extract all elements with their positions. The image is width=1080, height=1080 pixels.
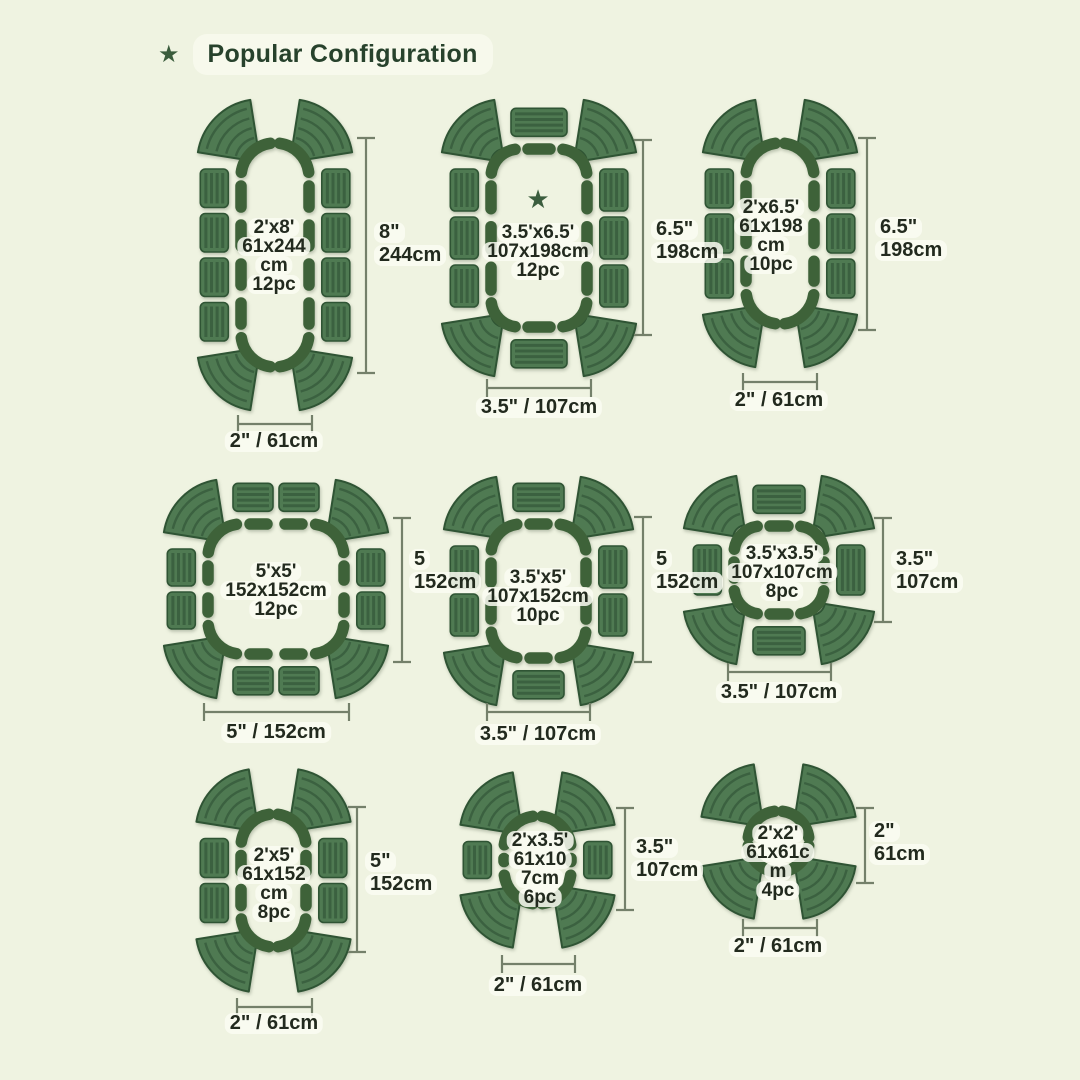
label-line: 152x152cm [220, 581, 331, 600]
label-line: 152cm [409, 572, 481, 593]
label-line: 61x61c [741, 843, 814, 862]
label-line: 7cm [516, 869, 564, 888]
label-line: 8" [374, 222, 405, 243]
label-line: 4pc [757, 881, 800, 900]
label-line: 3.5" / 107cm [475, 724, 601, 745]
width-dimension-label: 2" / 61cm [730, 390, 828, 411]
label-line: 3.5" / 107cm [716, 682, 842, 703]
bed-size-label: 3.5'x5' 107x152cm 10pc [482, 568, 593, 625]
label-line: 198cm [875, 240, 947, 261]
label-line: 2'x5' [249, 846, 300, 865]
label-line: 107x198cm [482, 242, 593, 261]
label-line: 198cm [651, 242, 723, 263]
garden-bed-diagram-svg [0, 0, 1080, 1080]
height-dimension-label: 6.5" 198cm [875, 217, 947, 263]
label-line: 10pc [511, 606, 564, 625]
label-line: 5'x5' [251, 562, 302, 581]
label-line: cm [255, 256, 292, 275]
height-dimension-label: 2" 61cm [869, 821, 930, 867]
label-line: 107x107cm [726, 563, 837, 582]
bed-size-label: 2'x3.5' 61x10 7cm 6pc [507, 831, 574, 907]
label-line: 61cm [869, 844, 930, 865]
bed-size-label: 2'x2' 61x61c m 4pc [741, 824, 814, 900]
width-dimension-label: 2" / 61cm [489, 975, 587, 996]
label-line: 3.5" [891, 549, 938, 570]
label-line: m [765, 862, 792, 881]
label-line: 2" / 61cm [489, 975, 587, 996]
height-dimension-label: 5 152cm [651, 549, 723, 595]
label-line: 8pc [761, 582, 804, 601]
height-dimension-label: 3.5" 107cm [891, 549, 963, 595]
label-line: 8pc [253, 903, 296, 922]
height-dimension-label: 5" 152cm [365, 851, 437, 897]
height-dimension-label: 8" 244cm [374, 222, 446, 268]
label-line: 61x198 [734, 217, 807, 236]
label-line: 12pc [511, 261, 564, 280]
label-line: 10pc [744, 255, 797, 274]
height-dimension-label: 6.5" 198cm [651, 219, 723, 265]
label-line: 3.5" [631, 837, 678, 858]
label-line: 3.5'x6.5' [497, 223, 579, 242]
label-line: 6pc [519, 888, 562, 907]
label-line: 2'x8' [249, 218, 300, 237]
label-line: 6.5" [875, 217, 922, 238]
label-line: 107cm [891, 572, 963, 593]
label-line: 61x244 [237, 237, 310, 256]
bed-size-label: 2'x5' 61x152 cm 8pc [237, 846, 310, 922]
bed-size-label: 3.5'x6.5' 107x198cm 12pc [482, 223, 593, 280]
label-line: 152cm [651, 572, 723, 593]
width-dimension-label: 2" / 61cm [225, 1013, 323, 1034]
popular-configuration-infographic: ★ Popular Configuration 2'x8' 61x244 cm … [0, 0, 1080, 1080]
width-dimension-label: 3.5" / 107cm [475, 724, 601, 745]
width-dimension-label: 5" / 152cm [221, 722, 331, 743]
label-line: 2" / 61cm [729, 936, 827, 957]
label-line: 5 [409, 549, 430, 570]
width-dimension-label: 2" / 61cm [225, 431, 323, 452]
bed-size-label: 5'x5' 152x152cm 12pc [220, 562, 331, 619]
label-line: cm [255, 884, 292, 903]
label-line: 2'x3.5' [507, 831, 574, 850]
label-line: 3.5'x3.5' [741, 544, 823, 563]
label-line: 2'x2' [753, 824, 804, 843]
bed-size-label: 2'x6.5' 61x198 cm 10pc [734, 198, 807, 274]
label-line: 2" / 61cm [730, 390, 828, 411]
featured-star-icon: ★ [526, 186, 549, 212]
label-line: 6.5" [651, 219, 698, 240]
label-line: 3.5" / 107cm [476, 397, 602, 418]
label-line: 3.5'x5' [505, 568, 572, 587]
width-dimension-label: 3.5" / 107cm [716, 682, 842, 703]
label-line: 2'x6.5' [738, 198, 805, 217]
label-line: 5" / 152cm [221, 722, 331, 743]
bed-size-label: 2'x8' 61x244 cm 12pc [237, 218, 310, 294]
label-line: 107x152cm [482, 587, 593, 606]
height-dimension-label: 5 152cm [409, 549, 481, 595]
label-line: 152cm [365, 874, 437, 895]
label-line: 5 [651, 549, 672, 570]
label-line: 12pc [247, 275, 300, 294]
label-line: 5" [365, 851, 396, 872]
label-line: 2" / 61cm [225, 431, 323, 452]
width-dimension-label: 2" / 61cm [729, 936, 827, 957]
width-dimension-label: 3.5" / 107cm [476, 397, 602, 418]
label-line: 61x152 [237, 865, 310, 884]
label-line: 2" [869, 821, 900, 842]
label-line: 61x10 [509, 850, 572, 869]
label-line: 107cm [631, 860, 703, 881]
height-dimension-label: 3.5" 107cm [631, 837, 703, 883]
label-line: 244cm [374, 245, 446, 266]
label-line: cm [752, 236, 789, 255]
label-line: 12pc [249, 600, 302, 619]
label-line: 2" / 61cm [225, 1013, 323, 1034]
bed-size-label: 3.5'x3.5' 107x107cm 8pc [726, 544, 837, 601]
